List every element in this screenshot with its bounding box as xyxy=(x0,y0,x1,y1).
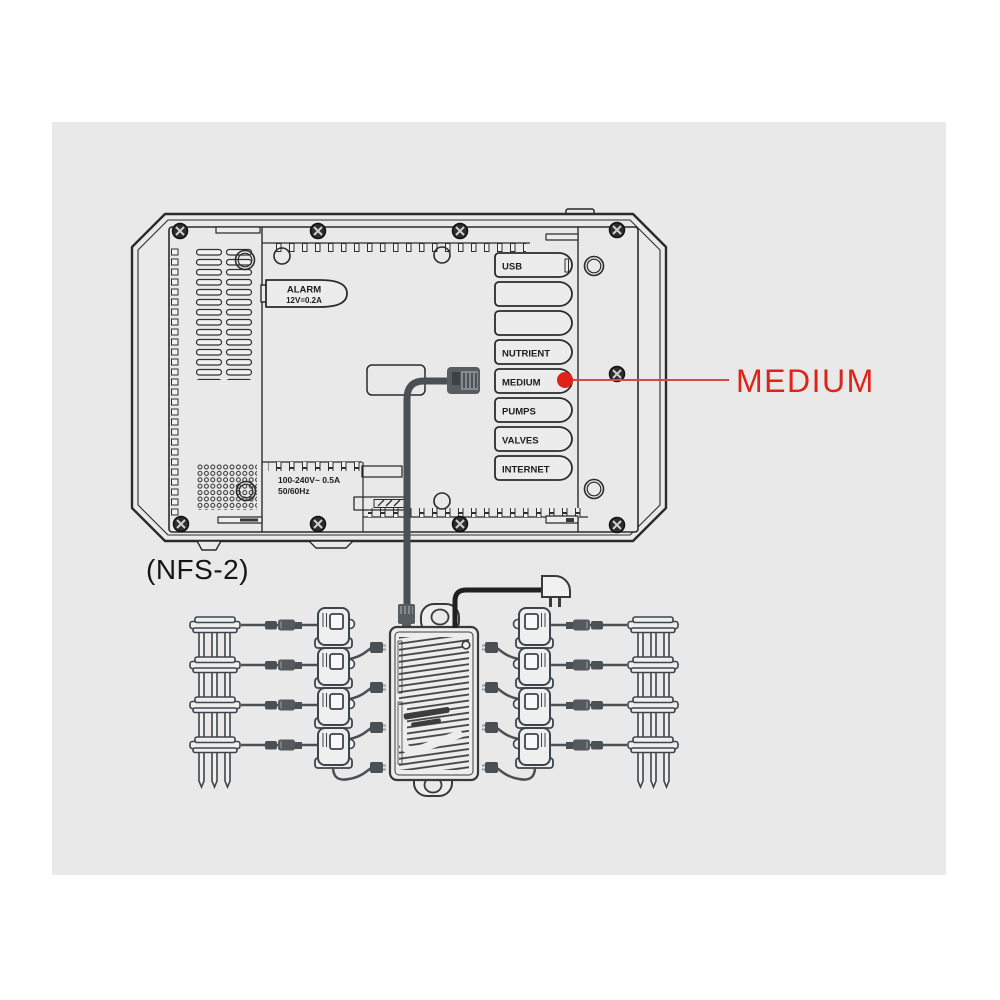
port-label-nutrient: NUTRIENT xyxy=(502,349,550,360)
screw-icon xyxy=(311,224,326,239)
screw-icon xyxy=(610,223,625,238)
rj45-connector-icon xyxy=(447,367,480,394)
model-label: (NFS-2) xyxy=(146,554,249,585)
vent-notches-mid xyxy=(268,462,360,471)
vent-grille xyxy=(196,248,254,380)
led-hole xyxy=(462,641,470,649)
bottom-foot-center xyxy=(309,541,353,548)
power-rating-line1: 100-240V~ 0.5A xyxy=(278,475,340,485)
diagram-canvas: ALARM 12V=0.2A 100-240V~ 0.5A 50/60Hz xyxy=(0,0,1000,1000)
port-label-usb: USB xyxy=(502,262,522,273)
port-label-medium: MEDIUM xyxy=(502,378,541,389)
alarm-rating: 12V=0.2A xyxy=(286,296,322,305)
screw-icon xyxy=(174,517,189,532)
port-label-valves: VALVES xyxy=(502,436,539,447)
screw-icon xyxy=(453,224,468,239)
port-blank-2 xyxy=(495,311,572,335)
alarm-label: ALARM 12V=0.2A xyxy=(261,280,347,307)
mount-ear-hole xyxy=(432,610,449,625)
screw-icon xyxy=(173,224,188,239)
alarm-title: ALARM xyxy=(287,285,321,296)
screw-icon xyxy=(610,518,625,533)
power-rating-line2: 50/60Hz xyxy=(278,486,310,496)
power-supply-box xyxy=(390,604,478,796)
vent-notches-left-edge xyxy=(171,248,179,518)
vent-notches-top xyxy=(276,243,526,252)
callout-label: MEDIUM xyxy=(736,363,875,399)
plug-prong xyxy=(549,597,552,607)
port-blank-1 xyxy=(495,282,572,306)
callout-dot xyxy=(557,372,573,388)
plug-prong xyxy=(558,597,561,607)
screw-icon xyxy=(311,517,326,532)
screw-icon xyxy=(453,517,468,532)
speaker-grille xyxy=(197,464,257,510)
port-label-pumps: PUMPS xyxy=(502,407,536,418)
port-label-internet: INTERNET xyxy=(502,465,550,476)
bottom-foot-left xyxy=(197,541,221,550)
